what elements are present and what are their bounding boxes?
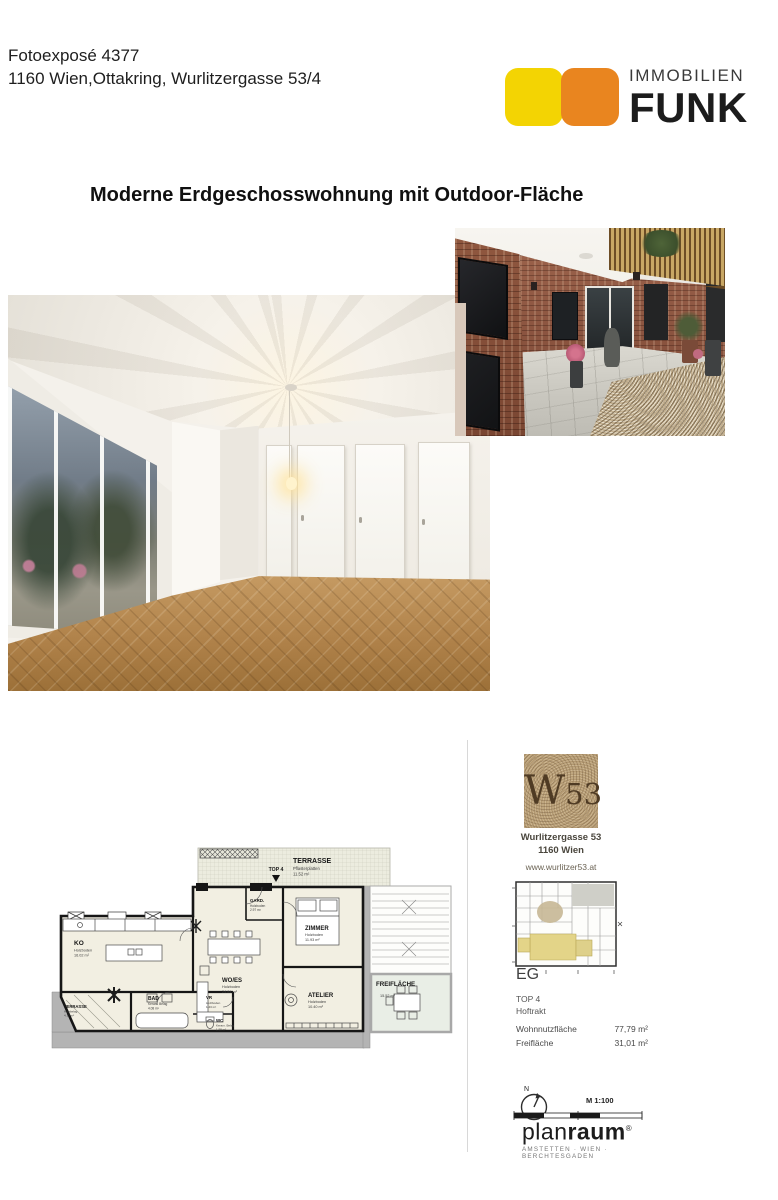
metric-value: 31,01 m² <box>614 1038 648 1048</box>
project-address: Wurlitzergasse 53 1160 Wien <box>499 831 623 857</box>
site-plan-block <box>572 884 614 906</box>
svg-text:24.84 m²: 24.84 m² <box>222 990 238 994</box>
logo-orange-square-icon <box>561 68 619 126</box>
room-label: WO/ES <box>222 978 242 984</box>
door-handle-icon <box>359 517 362 523</box>
project-street: Wurlitzergasse 53 <box>499 831 623 844</box>
svg-text:4.08 m²: 4.08 m² <box>148 1007 159 1011</box>
courtyard-door-1 <box>644 284 668 340</box>
room-label: VR <box>206 995 213 1000</box>
site-plan-drawing <box>510 878 625 978</box>
light-bulb-icon <box>286 477 297 490</box>
svg-text:4.17 m²: 4.17 m² <box>64 1014 74 1018</box>
lamp-cord <box>289 390 290 481</box>
svg-text:Pflasterplatten: Pflasterplatten <box>293 866 320 871</box>
room-label: KO <box>74 940 84 947</box>
room-label: ZIMMER <box>305 926 329 932</box>
svg-text:15.52 m²: 15.52 m² <box>380 994 396 998</box>
svg-text:Keram. Belag: Keram. Belag <box>148 1002 168 1006</box>
svg-text:Holzboden: Holzboden <box>222 985 240 989</box>
svg-text:1.43 m²: 1.43 m² <box>206 1005 216 1009</box>
stone-statue <box>604 328 620 368</box>
wall-lamp-icon <box>531 282 538 290</box>
svg-text:11.52 m²: 11.52 m² <box>293 872 310 877</box>
expose-address: 1160 Wien,Ottakring, Wurlitzergasse 53/4 <box>8 67 321 90</box>
svg-text:Holzboden: Holzboden <box>305 933 323 937</box>
expose-number: Fotoexposé 4377 <box>8 44 321 67</box>
logo-text-funk: FUNK <box>629 86 748 130</box>
room-label: FREIFLÄCHE <box>376 981 415 988</box>
scale-label: M 1:100 <box>586 1096 614 1105</box>
north-label: N <box>524 1086 529 1093</box>
room-label: TERRASSE <box>64 1004 87 1009</box>
svg-text:1.98 m²: 1.98 m² <box>216 1028 226 1032</box>
immobilien-funk-logo: IMMOBILIEN FUNK <box>503 60 773 144</box>
logo-text: IMMOBILIEN FUNK <box>629 66 748 130</box>
door-handle-icon <box>422 519 425 525</box>
room-label: TERRASSE <box>293 858 331 865</box>
logo-yellow-square-icon <box>505 68 563 126</box>
stairwell-area <box>370 886 451 974</box>
svg-text:11.93 m²: 11.93 m² <box>305 938 320 942</box>
interior-corner-wall-shadow <box>220 426 259 580</box>
svg-text:16.02 m²: 16.02 m² <box>74 954 90 958</box>
door-handle-icon <box>301 515 304 521</box>
dark-planter <box>570 361 584 388</box>
unit-tract: Hoftrakt <box>516 1005 546 1017</box>
interior-photo <box>8 295 490 691</box>
floor-plan: TERRASSE Pflasterplatten 11.52 m² TOP 4 … <box>50 842 465 1062</box>
metric-row: Wohnnutzfläche 77,79 m² <box>516 1024 648 1034</box>
courtyard-door-2 <box>706 280 725 342</box>
planraum-logo: planraum® AMSTETTEN · WIEN · BERCHTESGAD… <box>522 1116 682 1160</box>
wall-lamp-icon <box>633 272 640 280</box>
site-plan-courtyard <box>537 901 563 923</box>
registered-mark-icon: ® <box>626 1124 632 1133</box>
interior-door-1 <box>266 445 292 582</box>
w53-logo-w: W <box>524 768 565 814</box>
room-label: WC <box>216 1018 224 1023</box>
project-city: 1160 Wien <box>499 844 623 857</box>
planraum-plan: plan <box>522 1119 567 1145</box>
logo-text-immobilien: IMMOBILIEN <box>629 66 748 86</box>
planraum-raum: raum <box>567 1119 625 1145</box>
interior-corner-wall <box>172 422 220 596</box>
svg-text:Holzboden: Holzboden <box>308 1000 326 1004</box>
vertical-divider <box>467 740 468 1152</box>
dark-planter <box>705 340 721 375</box>
w53-logo-53: 53 <box>565 777 602 811</box>
unit-info: TOP 4 Hoftrakt <box>516 993 546 1017</box>
floor-level-label: EG <box>516 966 539 984</box>
room-label: GARD. <box>250 898 264 903</box>
floor-plan-drawing: TERRASSE Pflasterplatten 11.52 m² TOP 4 … <box>50 842 465 1062</box>
unit-number: TOP 4 <box>516 993 546 1005</box>
interior-door-2 <box>297 445 345 590</box>
ceiling-light-icon <box>579 253 593 259</box>
interior-door-3 <box>355 444 405 596</box>
interior-ceiling <box>8 295 490 430</box>
interior-door-4 <box>418 442 471 602</box>
planraum-wordmark: planraum® <box>522 1116 682 1145</box>
svg-text:10.40 m²: 10.40 m² <box>308 1005 324 1009</box>
page-title: Moderne Erdgeschosswohnung mit Outdoor-F… <box>90 184 583 207</box>
metric-value: 77,79 m² <box>614 1024 648 1034</box>
top4-marker: TOP 4 <box>269 867 284 873</box>
metric-row: Freifläche 31,01 m² <box>516 1038 648 1048</box>
metric-label: Wohnnutzfläche <box>516 1024 577 1034</box>
svg-text:2.97 m²: 2.97 m² <box>250 908 261 912</box>
metric-label: Freifläche <box>516 1038 553 1048</box>
lamp-canopy <box>285 384 297 391</box>
expose-page: Fotoexposé 4377 1160 Wien,Ottakring, Wur… <box>0 0 778 1200</box>
courtyard-left-edge-wall <box>455 303 466 436</box>
planraum-cities: AMSTETTEN · WIEN · BERCHTESGADEN <box>522 1146 682 1160</box>
svg-text:Holzboden: Holzboden <box>74 949 92 953</box>
project-website: www.wurlitzer53.at <box>499 862 623 872</box>
courtyard-photo <box>455 228 725 436</box>
expose-header: Fotoexposé 4377 1160 Wien,Ottakring, Wur… <box>8 44 321 90</box>
room-label: ATELIER <box>308 993 334 999</box>
w53-logo: W53 <box>524 754 598 828</box>
courtyard-window <box>552 292 578 340</box>
